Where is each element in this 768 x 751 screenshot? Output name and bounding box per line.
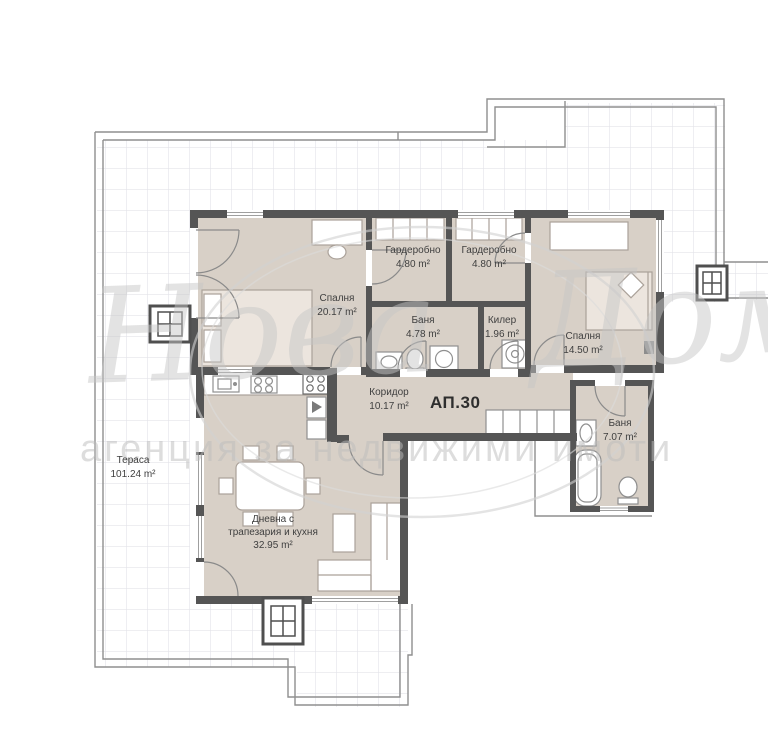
column-right (697, 266, 727, 300)
floor-plan-page: Нова Дом агенция за недвижими имоти Спал… (0, 0, 768, 751)
column-left (150, 306, 190, 342)
column-bottom (263, 598, 303, 644)
floor-plan-drawing (0, 0, 768, 751)
